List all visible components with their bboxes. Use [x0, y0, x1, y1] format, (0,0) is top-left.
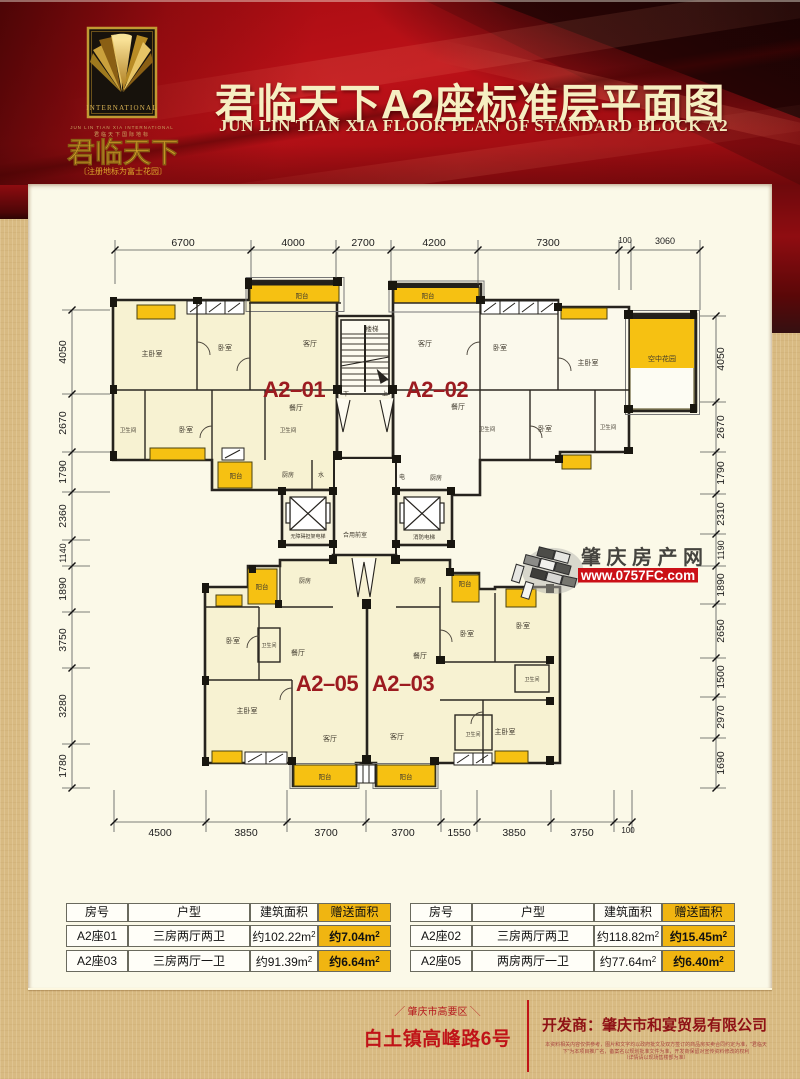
svg-text:客厅: 客厅: [390, 732, 404, 741]
svg-text:合用前室: 合用前室: [343, 531, 367, 539]
svg-text:3060: 3060: [655, 236, 675, 246]
svg-text:阳台: 阳台: [319, 772, 332, 781]
svg-text:卧室: 卧室: [179, 425, 193, 434]
svg-text:电: 电: [399, 473, 405, 481]
svg-text:餐厅: 餐厅: [289, 403, 303, 412]
svg-text:卫生间: 卫生间: [261, 642, 276, 649]
svg-text:卧室: 卧室: [538, 424, 552, 433]
svg-text:3850: 3850: [502, 827, 526, 839]
svg-text:3850: 3850: [234, 827, 258, 839]
svg-text:卫生间: 卫生间: [120, 426, 137, 434]
svg-text:A2–05: A2–05: [296, 671, 359, 696]
svg-text:A2–01: A2–01: [263, 377, 326, 402]
svg-text:1190: 1190: [716, 540, 726, 559]
svg-text:4050: 4050: [715, 347, 727, 371]
svg-text:厨房: 厨房: [430, 474, 442, 482]
svg-text:4050: 4050: [57, 340, 69, 364]
svg-text:卫生间: 卫生间: [465, 731, 480, 738]
svg-text:卧室: 卧室: [460, 629, 474, 638]
svg-text:餐厅: 餐厅: [291, 648, 305, 657]
svg-text:空中花园: 空中花园: [648, 354, 676, 363]
svg-text:1780: 1780: [57, 754, 69, 778]
svg-text:阳台: 阳台: [459, 579, 472, 588]
svg-text:消防电梯: 消防电梯: [413, 533, 436, 541]
svg-text:4200: 4200: [422, 237, 446, 249]
svg-text:阳台: 阳台: [400, 772, 413, 781]
svg-text:1790: 1790: [715, 461, 727, 485]
svg-text:客厅: 客厅: [418, 339, 432, 348]
svg-text:100: 100: [618, 236, 632, 245]
svg-text:上: 上: [382, 390, 388, 398]
svg-text:2670: 2670: [57, 411, 69, 435]
svg-text:3280: 3280: [57, 694, 69, 718]
svg-text:主卧室: 主卧室: [495, 727, 516, 736]
svg-text:3750: 3750: [570, 827, 594, 839]
svg-text:1890: 1890: [57, 577, 69, 601]
svg-text:肇庆房产网: 肇庆房产网: [581, 545, 709, 569]
svg-text:2360: 2360: [57, 504, 69, 528]
svg-text:3750: 3750: [57, 628, 69, 652]
svg-text:1690: 1690: [715, 751, 727, 775]
svg-text:3700: 3700: [314, 827, 338, 839]
svg-text:客厅: 客厅: [323, 734, 337, 743]
svg-text:主卧室: 主卧室: [142, 349, 163, 358]
svg-text:厨房: 厨房: [282, 471, 294, 479]
svg-text:卫生间: 卫生间: [600, 423, 617, 431]
svg-text:阳台: 阳台: [422, 291, 435, 300]
svg-text:阳台: 阳台: [296, 291, 309, 300]
svg-text:厨房: 厨房: [299, 577, 311, 585]
svg-text:1890: 1890: [715, 573, 727, 597]
svg-text:无障碍担架电梯: 无障碍担架电梯: [290, 533, 325, 540]
svg-text:4000: 4000: [281, 237, 305, 249]
svg-text:卫生间: 卫生间: [479, 425, 496, 433]
svg-text:A2–03: A2–03: [372, 671, 435, 696]
svg-text:楼梯: 楼梯: [366, 324, 380, 333]
svg-text:1790: 1790: [57, 460, 69, 484]
svg-text:主卧室: 主卧室: [237, 706, 258, 715]
svg-text:2970: 2970: [715, 705, 727, 729]
svg-text:卧室: 卧室: [516, 621, 530, 630]
svg-text:主卧室: 主卧室: [578, 358, 599, 367]
svg-text:阳台: 阳台: [230, 471, 243, 480]
svg-text:2700: 2700: [351, 237, 375, 249]
svg-text:餐厅: 餐厅: [451, 402, 465, 411]
svg-text:客厅: 客厅: [303, 339, 317, 348]
svg-text:100: 100: [621, 826, 635, 835]
svg-text:A2–02: A2–02: [406, 377, 469, 402]
svg-text:2310: 2310: [715, 502, 727, 526]
svg-text:厨房: 厨房: [414, 577, 426, 585]
svg-text:水: 水: [318, 471, 324, 479]
svg-text:2650: 2650: [715, 619, 727, 643]
svg-text:卧室: 卧室: [493, 343, 507, 352]
svg-text:6700: 6700: [171, 237, 195, 249]
svg-text:卫生间: 卫生间: [524, 676, 539, 683]
svg-text:2670: 2670: [715, 415, 727, 439]
svg-text:下: 下: [343, 391, 349, 398]
svg-text:阳台: 阳台: [256, 582, 269, 591]
svg-text:卫生间: 卫生间: [280, 426, 297, 434]
svg-text:3700: 3700: [391, 827, 415, 839]
svg-text:1500: 1500: [715, 665, 727, 689]
svg-text:7300: 7300: [536, 237, 560, 249]
svg-text:1550: 1550: [447, 827, 471, 839]
svg-text:4500: 4500: [148, 827, 172, 839]
svg-text:卧室: 卧室: [218, 343, 232, 352]
svg-text:餐厅: 餐厅: [413, 651, 427, 660]
svg-text:www.0757FC.com: www.0757FC.com: [580, 568, 695, 583]
svg-text:1140: 1140: [58, 543, 68, 562]
svg-text:卧室: 卧室: [226, 636, 240, 645]
